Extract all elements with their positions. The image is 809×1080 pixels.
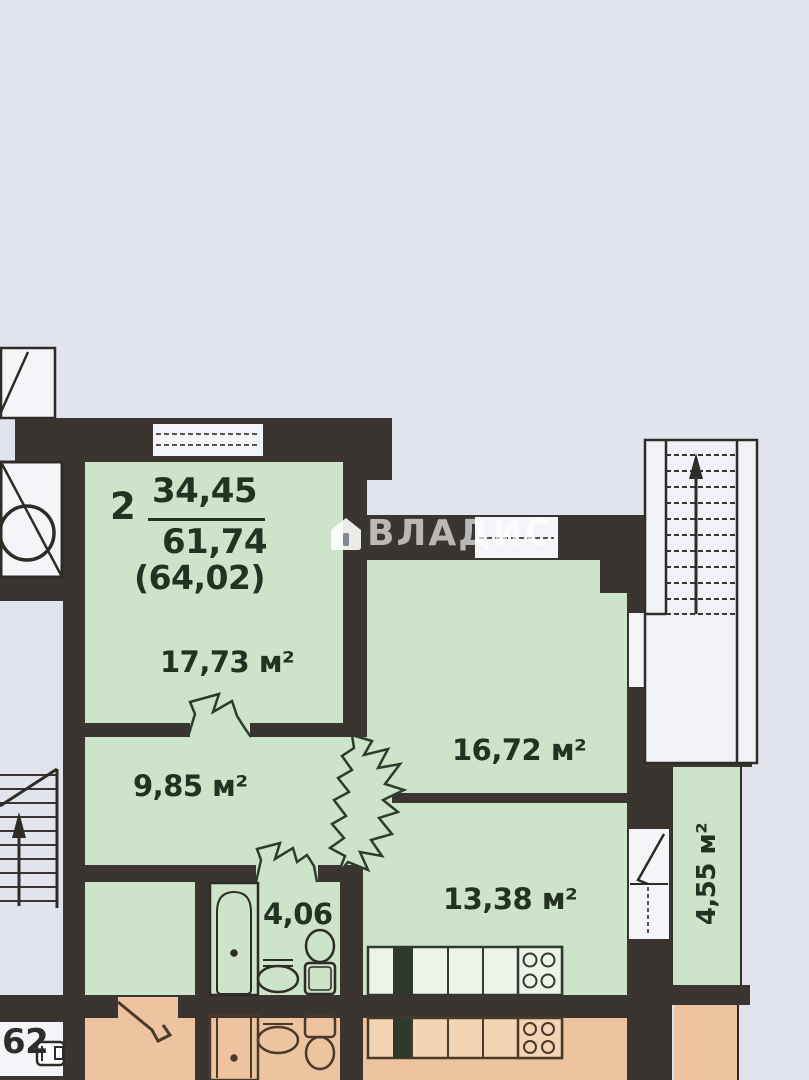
room-label-bathroom: 4,06 — [263, 900, 333, 929]
room-label-hallway: 9,85 м² — [133, 772, 248, 801]
floor-plan-photo: 2 34,45 61,74 (64,02) 17,73 м² 16,72 м² … — [0, 0, 809, 1080]
wall-elevator-cap — [0, 577, 63, 601]
kitchen-counter — [368, 1018, 562, 1058]
wall-left-outer — [63, 418, 85, 1080]
neighbor-apartment-label: 62 — [2, 1025, 48, 1059]
rooms-count-label: 2 — [110, 488, 135, 525]
neighbor-room-fill — [85, 1018, 197, 1080]
area-fraction-line — [148, 518, 265, 521]
balcony-door-icon — [629, 829, 669, 939]
hallway-closet-fill — [85, 865, 195, 1000]
stairwell-main-icon — [645, 440, 757, 763]
window-top-icon — [153, 424, 263, 456]
stove-4-burner-symbol — [518, 1018, 562, 1058]
elevator-icon — [0, 348, 62, 577]
full-area-label: (64,02) — [134, 561, 265, 594]
watermark: ВЛАДИС — [330, 516, 553, 552]
total-area-label: 61,74 — [162, 525, 267, 559]
wall-bath-left — [195, 865, 210, 1080]
wall-balcony-cap-bottom — [665, 985, 750, 1005]
up-arrow-icon — [12, 812, 26, 838]
room-label-living: 17,73 м² — [160, 648, 294, 677]
wall-bath-right — [340, 865, 363, 1080]
wall-stair-chunk — [600, 560, 627, 593]
wall-bottom-left-a — [0, 995, 63, 1022]
kitchen-counter — [368, 947, 562, 995]
house-icon — [330, 517, 362, 551]
room-bathroom-fill — [210, 865, 343, 1000]
stove-4-burner-symbol — [518, 947, 562, 995]
living-area-label: 34,45 — [152, 474, 257, 508]
room-label-kitchen: 13,38 м² — [443, 885, 577, 914]
stairwell-left-icon — [0, 769, 57, 908]
neighbor-balcony-fill — [674, 1005, 738, 1080]
wall-bottom-left-b — [0, 1076, 63, 1080]
wall-corner-stub — [343, 418, 392, 480]
watermark-text: ВЛАДИС — [367, 516, 553, 552]
wall-bedroom-kitchen — [392, 793, 627, 803]
room-label-bedroom: 16,72 м² — [452, 736, 586, 765]
room-label-balcony: 4,55 м² — [694, 823, 720, 925]
